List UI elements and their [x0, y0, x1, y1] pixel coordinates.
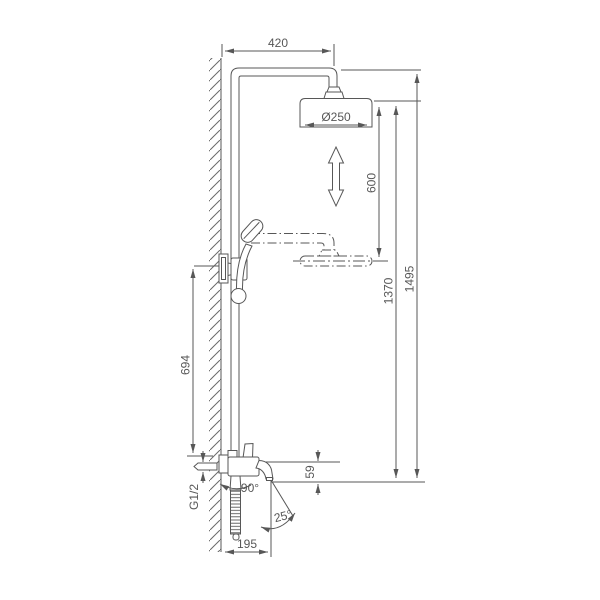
- wall: [209, 58, 221, 552]
- dim-label-head-diameter: Ø250: [321, 110, 351, 124]
- hand-shower-assembly: [219, 217, 266, 304]
- height-adjust-arrow: [329, 147, 344, 206]
- wall-hatching: [209, 58, 221, 552]
- inlet-nipple: [194, 463, 217, 470]
- shower-head-connector: [324, 87, 344, 99]
- dim-label-25deg: 25°: [273, 507, 294, 525]
- holder-escutcheon-inner: [222, 258, 226, 280]
- technical-drawing-page: 420 Ø250 600 1370 1495 694 59 G1/2 90° 2…: [0, 0, 600, 600]
- phantom-lower-position: [251, 234, 379, 267]
- mixer-wall-flange: [219, 455, 228, 473]
- phantom-head-connector: [319, 250, 339, 256]
- dim-label-1370: 1370: [382, 277, 396, 304]
- shower-system-diagram: 420 Ø250 600 1370 1495 694 59 G1/2 90° 2…: [0, 0, 600, 600]
- dim-label-420: 420: [268, 36, 288, 50]
- dim-label-600: 600: [365, 173, 379, 193]
- dim-label-195: 195: [237, 537, 257, 551]
- slider-knob: [231, 289, 246, 304]
- mixer-body: [228, 457, 259, 476]
- dim-label-g12: G1/2: [187, 484, 201, 510]
- diverter-knob: [228, 451, 237, 458]
- hand-shower-head: [238, 217, 265, 245]
- mixer-handle: [243, 444, 253, 459]
- dim-label-694: 694: [179, 355, 193, 375]
- shower-hose: [230, 476, 241, 540]
- dim-label-59: 59: [303, 465, 317, 479]
- dim-label-1495: 1495: [403, 265, 417, 292]
- dim-label-90deg: 90°: [241, 481, 259, 495]
- hose-corrugation: [231, 490, 241, 534]
- mixer-faucet: [194, 444, 273, 481]
